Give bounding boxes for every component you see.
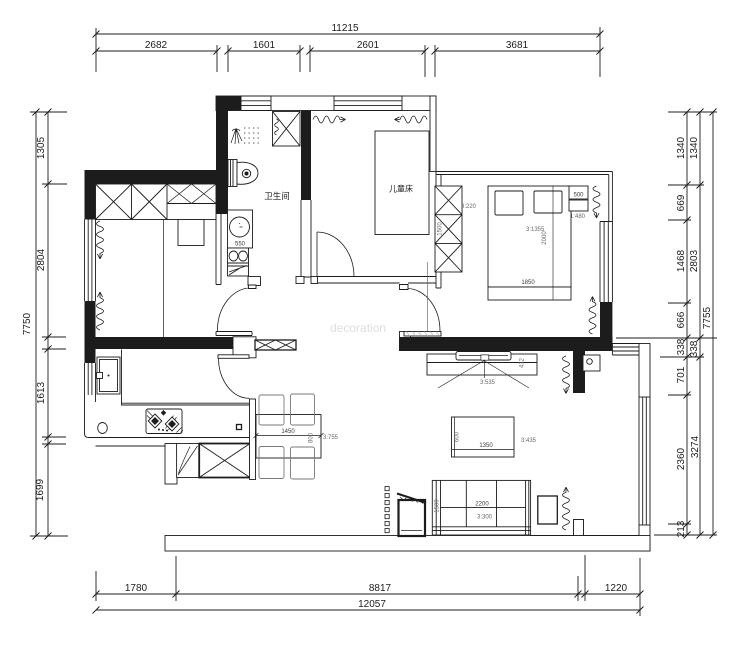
svg-text:1613: 1613: [36, 381, 47, 404]
svg-text:338: 338: [689, 340, 700, 357]
svg-text:2682: 2682: [145, 40, 168, 51]
svg-text:2200: 2200: [475, 502, 489, 508]
svg-text:decoration: decoration: [330, 321, 386, 335]
svg-text:儿童床: 儿童床: [389, 184, 413, 194]
svg-text:2804: 2804: [36, 248, 47, 271]
svg-text:11215: 11215: [331, 23, 359, 34]
svg-text:669: 669: [676, 194, 687, 211]
svg-text:1340: 1340: [676, 136, 687, 159]
svg-text:701: 701: [676, 366, 687, 383]
svg-text:3:435: 3:435: [521, 438, 537, 444]
svg-text:8817: 8817: [369, 583, 392, 594]
svg-text:1220: 1220: [605, 583, 628, 594]
svg-text:7755: 7755: [702, 306, 713, 329]
svg-text:338: 338: [676, 338, 687, 355]
svg-text:3:755: 3:755: [323, 435, 339, 441]
svg-text:3:535: 3:535: [480, 380, 496, 386]
svg-text:1340: 1340: [689, 136, 700, 159]
svg-text:1450: 1450: [281, 429, 295, 435]
svg-text:2601: 2601: [357, 40, 380, 51]
svg-text:2360: 2360: [676, 447, 687, 470]
svg-text:3:220: 3:220: [461, 204, 477, 210]
svg-text:1850: 1850: [521, 280, 535, 286]
svg-text:3274: 3274: [690, 435, 701, 458]
svg-text:2803: 2803: [689, 249, 700, 272]
svg-text:3681: 3681: [506, 40, 529, 51]
svg-text:1:480: 1:480: [570, 214, 586, 220]
svg-text:1350: 1350: [479, 443, 493, 449]
svg-text:1780: 1780: [125, 583, 148, 594]
svg-text:1468: 1468: [676, 249, 687, 272]
svg-text:7750: 7750: [22, 312, 33, 335]
svg-text:1699: 1699: [35, 478, 46, 501]
svg-text:412: 412: [520, 357, 526, 368]
svg-text:1500: 1500: [435, 499, 441, 513]
svg-text:666: 666: [676, 311, 687, 328]
svg-text:500: 500: [573, 193, 584, 199]
svg-text:800: 800: [309, 432, 315, 443]
svg-text:1500: 1500: [438, 222, 444, 236]
svg-text:2000: 2000: [542, 231, 548, 245]
svg-text:卫生间: 卫生间: [264, 191, 290, 201]
svg-text:600: 600: [455, 431, 461, 442]
svg-text:3:300: 3:300: [477, 515, 493, 521]
svg-text:1305: 1305: [36, 136, 47, 159]
svg-text:12057: 12057: [358, 599, 386, 610]
svg-text:1601: 1601: [253, 40, 276, 51]
svg-text:550: 550: [235, 242, 246, 248]
